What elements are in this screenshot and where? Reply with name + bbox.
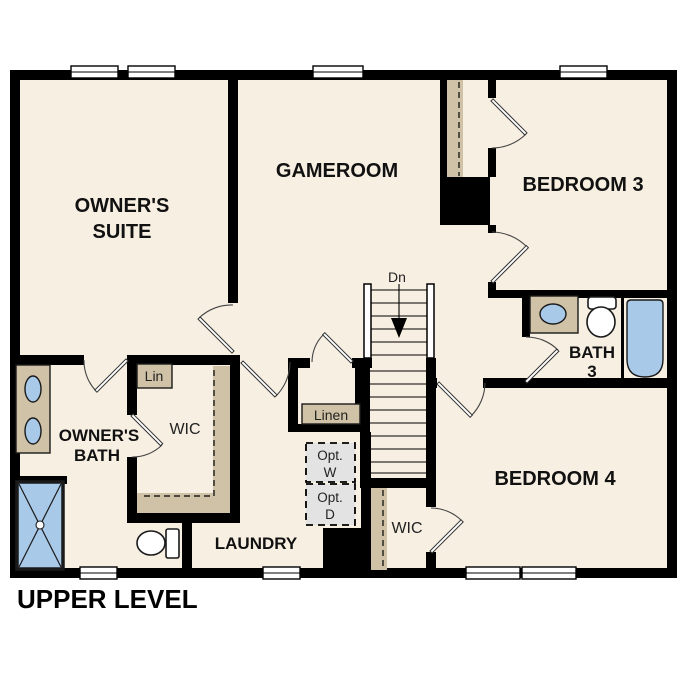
bed3-closet-shelf <box>447 80 463 177</box>
wall-wic-left-a <box>127 365 137 415</box>
window-bedroom4-1 <box>466 567 520 579</box>
toilet-icon <box>587 297 616 337</box>
floor-plan-page: OWNER'S SUITE GAMEROOM BEDROOM 3 BEDROOM… <box>0 0 687 687</box>
bath3-label-2: 3 <box>587 362 596 381</box>
wall-bed3-left-b <box>488 148 496 177</box>
wall-toilet-laundry <box>182 517 192 570</box>
wall-bed4-left-b <box>426 552 436 570</box>
stair-rail-left <box>364 284 371 358</box>
owners-suite-label-2: SUITE <box>93 221 152 243</box>
window-owners-bath <box>80 567 117 579</box>
opt-dryer-label-2: D <box>325 507 335 522</box>
wall-wic-right <box>230 360 240 523</box>
wall-stairs-left <box>360 358 370 488</box>
owners-bath-label-1: OWNER'S <box>59 426 140 445</box>
plan-title: UPPER LEVEL <box>17 584 198 614</box>
sink-icon <box>25 376 41 402</box>
bedroom4-label: BEDROOM 4 <box>494 468 616 490</box>
wall-bed3-left-a <box>488 75 496 98</box>
window-bedroom4-2 <box>522 567 576 579</box>
sink-icon <box>540 304 566 324</box>
owners-bath-label-2: BATH <box>74 446 120 465</box>
bathtub-icon <box>627 300 663 377</box>
window-bedroom3 <box>560 66 607 78</box>
sink-icon <box>25 418 41 444</box>
window-gameroom <box>313 66 363 78</box>
owners-wic-shelf-right <box>213 366 230 513</box>
gameroom-label: GAMEROOM <box>276 160 398 182</box>
owners-wic-label: WIC <box>169 421 200 438</box>
bedroom3-label: BEDROOM 3 <box>522 174 643 196</box>
floor-plan-drawing: OWNER'S SUITE GAMEROOM BEDROOM 3 BEDROOM… <box>0 0 687 687</box>
bed4-wic-shelf <box>371 488 387 570</box>
wall-bed4-left-a <box>426 388 436 507</box>
window-laundry <box>263 567 300 579</box>
stairs-dn-label: Dn <box>388 269 406 285</box>
wall-gameroom-right <box>440 75 447 177</box>
lin-label: Lin <box>145 368 164 384</box>
window-suite-1 <box>71 66 118 78</box>
wall-bed4-top <box>483 378 677 388</box>
bed4-wic-label: WIC <box>391 520 422 537</box>
toilet-icon <box>137 529 179 558</box>
wall-suite-gameroom <box>228 75 238 303</box>
wall-linen-bottom <box>288 424 365 432</box>
laundry-label: LAUNDRY <box>215 534 298 553</box>
opt-washer-label-1: Opt. <box>317 448 343 463</box>
wall-linen-left <box>288 368 298 432</box>
wall-tub-partition <box>621 298 624 378</box>
stair-rail-right <box>427 284 434 358</box>
wall-stairs-bottom <box>365 478 436 488</box>
bath3-label-1: BATH <box>569 343 615 362</box>
wall-bath3-left <box>522 296 530 337</box>
wall-suite-bath-a <box>20 355 84 365</box>
wall-bed3-left-d <box>488 282 496 298</box>
owners-wic-shelf-bottom <box>137 493 230 513</box>
chase-bed3 <box>440 177 490 225</box>
chase-laundry <box>323 528 361 570</box>
wall-bath3-top <box>488 290 677 298</box>
window-suite-2 <box>128 66 175 78</box>
opt-washer-label-2: W <box>324 465 337 480</box>
wall-bed4-top-stub <box>426 378 437 388</box>
wall-hall-a <box>288 358 310 368</box>
owners-suite-label-1: OWNER'S <box>75 195 170 217</box>
linen-label: Linen <box>314 407 348 423</box>
shower-icon <box>17 482 63 569</box>
opt-dryer-label-1: Opt. <box>317 490 343 505</box>
